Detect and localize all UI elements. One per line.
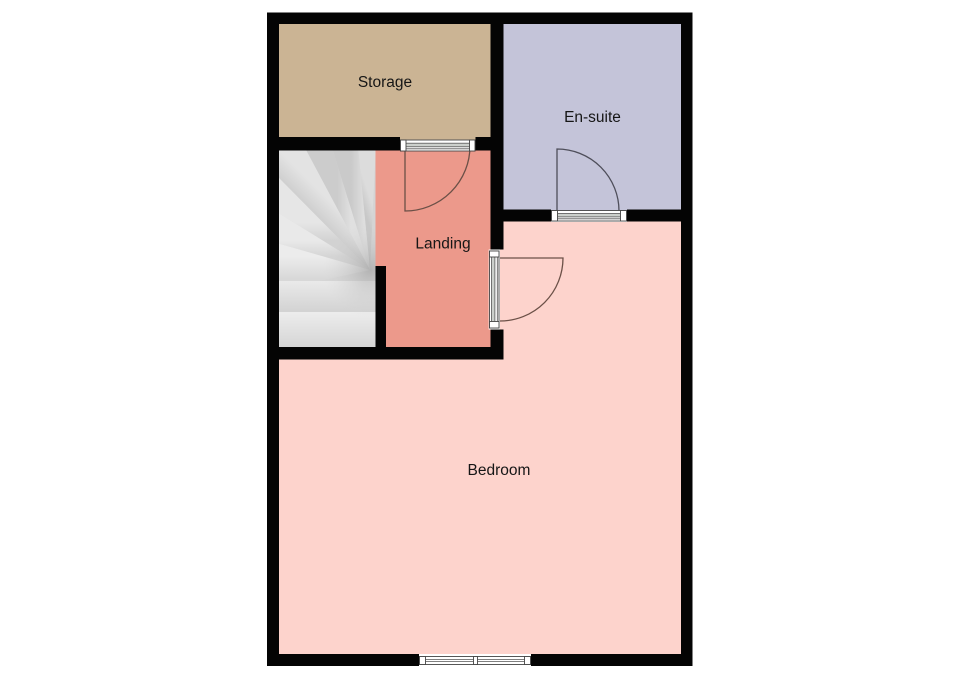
svg-text:Bedroom: Bedroom — [468, 462, 531, 479]
svg-text:En-suite: En-suite — [564, 109, 621, 126]
svg-text:Storage: Storage — [358, 74, 412, 91]
svg-text:Landing: Landing — [415, 236, 470, 253]
